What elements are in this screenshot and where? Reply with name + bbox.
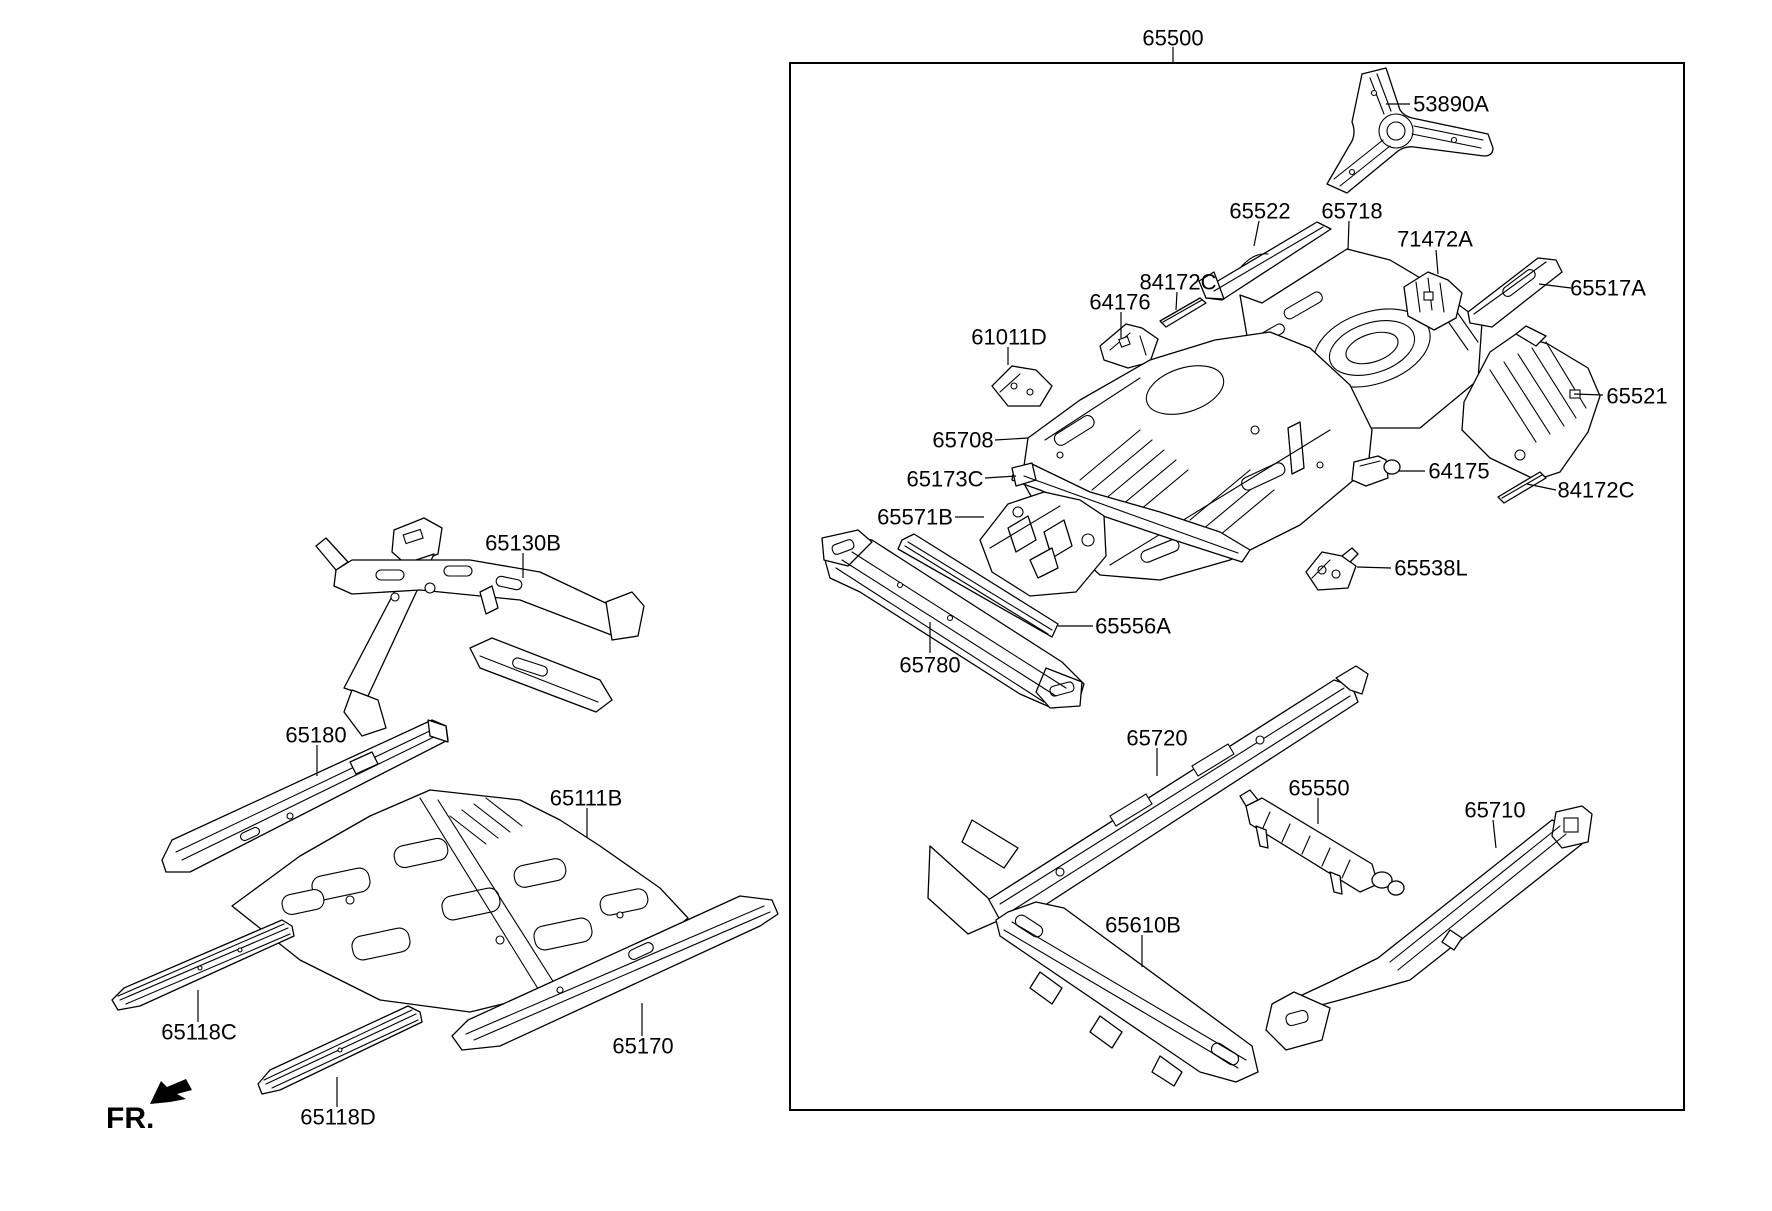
part-label-65708[interactable]: 65708 [932, 428, 993, 453]
part-label-65118D[interactable]: 65118D [300, 1105, 375, 1130]
part-label-65130B[interactable]: 65130B [485, 531, 561, 556]
part-64175-drawing [1352, 456, 1400, 486]
parts-diagram-canvas: 65500 53890A 65522 65718 71472A 65517A 8… [0, 0, 1772, 1211]
part-65538L-drawing [1306, 548, 1358, 590]
part-label-65710[interactable]: 65710 [1464, 798, 1525, 823]
part-65550-drawing [1240, 790, 1404, 895]
part-label-84172C-b[interactable]: 84172C [1557, 478, 1634, 503]
part-65571B-drawing [980, 492, 1106, 596]
part-label-65517A[interactable]: 65517A [1570, 276, 1646, 301]
part-label-65118C[interactable]: 65118C [161, 1020, 237, 1045]
part-label-65521[interactable]: 65521 [1606, 384, 1667, 409]
part-65521-drawing [1462, 326, 1600, 480]
part-label-65556A[interactable]: 65556A [1095, 614, 1171, 639]
part-label-65720[interactable]: 65720 [1126, 726, 1187, 751]
part-label-65170[interactable]: 65170 [612, 1034, 673, 1059]
part-label-65780[interactable]: 65780 [899, 653, 960, 678]
part-label-65538L[interactable]: 65538L [1394, 556, 1467, 581]
part-label-65111B[interactable]: 65111B [550, 786, 623, 811]
part-label-64176[interactable]: 64176 [1089, 290, 1150, 315]
part-label-64175[interactable]: 64175 [1428, 459, 1489, 484]
part-label-65180[interactable]: 65180 [285, 723, 346, 748]
part-label-65173C[interactable]: 65173C [906, 467, 983, 492]
part-label-65571B[interactable]: 65571B [877, 505, 953, 530]
part-label-65718[interactable]: 65718 [1321, 199, 1382, 224]
part-53890A-drawing [1327, 68, 1493, 193]
part-65517A-drawing [1468, 258, 1562, 327]
part-65130B-drawing [316, 518, 644, 736]
front-direction-arrow-icon [150, 1079, 192, 1104]
part-label-53890A[interactable]: 53890A [1413, 92, 1489, 117]
part-label-84172C-a[interactable]: 84172C [1139, 270, 1216, 295]
part-84172C-b-drawing [1498, 472, 1546, 503]
part-label-65500[interactable]: 65500 [1142, 26, 1203, 51]
part-label-65550[interactable]: 65550 [1288, 776, 1349, 801]
part-84172C-a-drawing [1160, 298, 1206, 327]
front-direction-label: FR. [106, 1102, 154, 1135]
part-label-61011D[interactable]: 61011D [971, 325, 1046, 350]
part-65118C-drawing [112, 920, 294, 1010]
parts-diagram-page: 65500 53890A 65522 65718 71472A 65517A 8… [0, 0, 1772, 1211]
part-label-71472A[interactable]: 71472A [1397, 227, 1473, 252]
part-label-65522[interactable]: 65522 [1229, 199, 1290, 224]
part-65118D-drawing [258, 1006, 422, 1094]
part-label-65610B[interactable]: 65610B [1105, 913, 1181, 938]
part-61011D-drawing [992, 366, 1052, 406]
